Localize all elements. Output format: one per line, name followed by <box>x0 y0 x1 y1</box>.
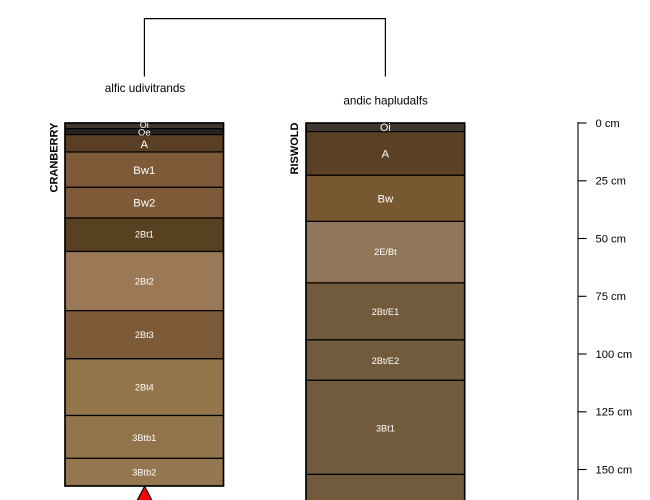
svg-text:andic hapludalfs: andic hapludalfs <box>343 94 428 107</box>
svg-text:2Bt1: 2Bt1 <box>135 230 154 240</box>
svg-text:75 cm: 75 cm <box>596 291 626 303</box>
svg-text:RISWOLD: RISWOLD <box>289 123 301 175</box>
svg-text:Bw2: Bw2 <box>133 198 155 210</box>
svg-text:3Btb2: 3Btb2 <box>132 468 156 478</box>
svg-text:50 cm: 50 cm <box>596 233 626 245</box>
svg-text:2Bt4: 2Bt4 <box>135 383 154 393</box>
svg-text:2Bt/E1: 2Bt/E1 <box>372 307 400 317</box>
svg-text:2Bt3: 2Bt3 <box>135 330 154 340</box>
svg-text:A: A <box>141 139 149 151</box>
svg-text:25 cm: 25 cm <box>596 176 626 188</box>
svg-text:2E/Bt: 2E/Bt <box>374 247 397 257</box>
svg-text:150 cm: 150 cm <box>596 464 633 476</box>
svg-text:Oi: Oi <box>380 122 391 134</box>
svg-text:CRANBERRY: CRANBERRY <box>49 122 61 193</box>
svg-text:alfic udivitrands: alfic udivitrands <box>105 82 186 95</box>
svg-text:Oe: Oe <box>138 126 151 137</box>
svg-text:3Bt1: 3Bt1 <box>376 423 395 433</box>
svg-text:2Bt/E2: 2Bt/E2 <box>372 356 400 366</box>
svg-text:100 cm: 100 cm <box>596 349 633 361</box>
svg-text:125 cm: 125 cm <box>596 407 633 419</box>
svg-text:2Bt2: 2Bt2 <box>135 277 154 287</box>
svg-text:Bw: Bw <box>378 193 395 205</box>
svg-text:A: A <box>382 148 390 160</box>
svg-text:Bw1: Bw1 <box>133 165 155 177</box>
svg-text:0 cm: 0 cm <box>596 118 620 130</box>
svg-text:3Btb1: 3Btb1 <box>132 433 156 443</box>
